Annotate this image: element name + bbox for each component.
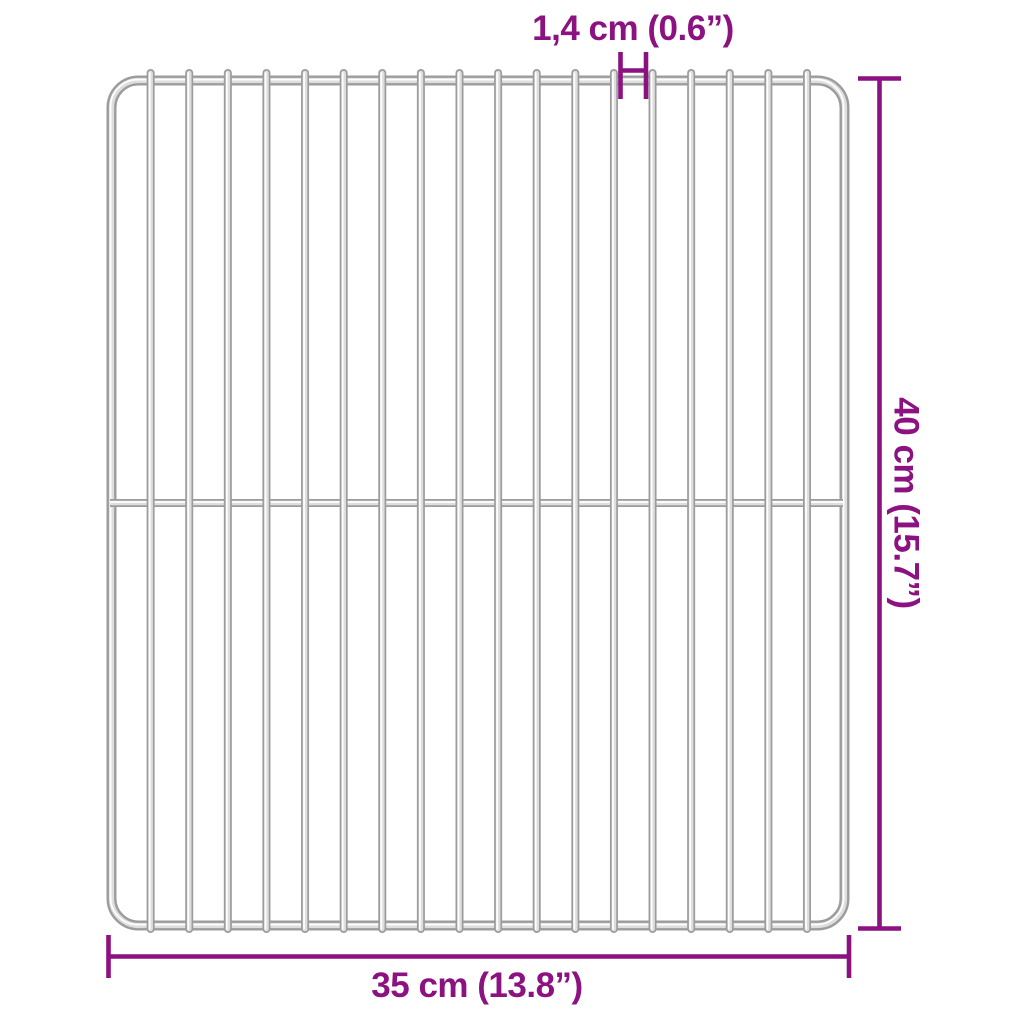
grill-grate-image (0, 0, 1024, 1024)
product-dimension-diagram: 1,4 cm (0.6”) 40 cm (15.7”) 35 cm (13.8”… (0, 0, 1024, 1024)
height-dimension-label: 40 cm (15.7”) (889, 397, 924, 608)
width-dimension-label: 35 cm (13.8”) (371, 968, 582, 1003)
gap-dimension-label: 1,4 cm (0.6”) (532, 11, 734, 46)
